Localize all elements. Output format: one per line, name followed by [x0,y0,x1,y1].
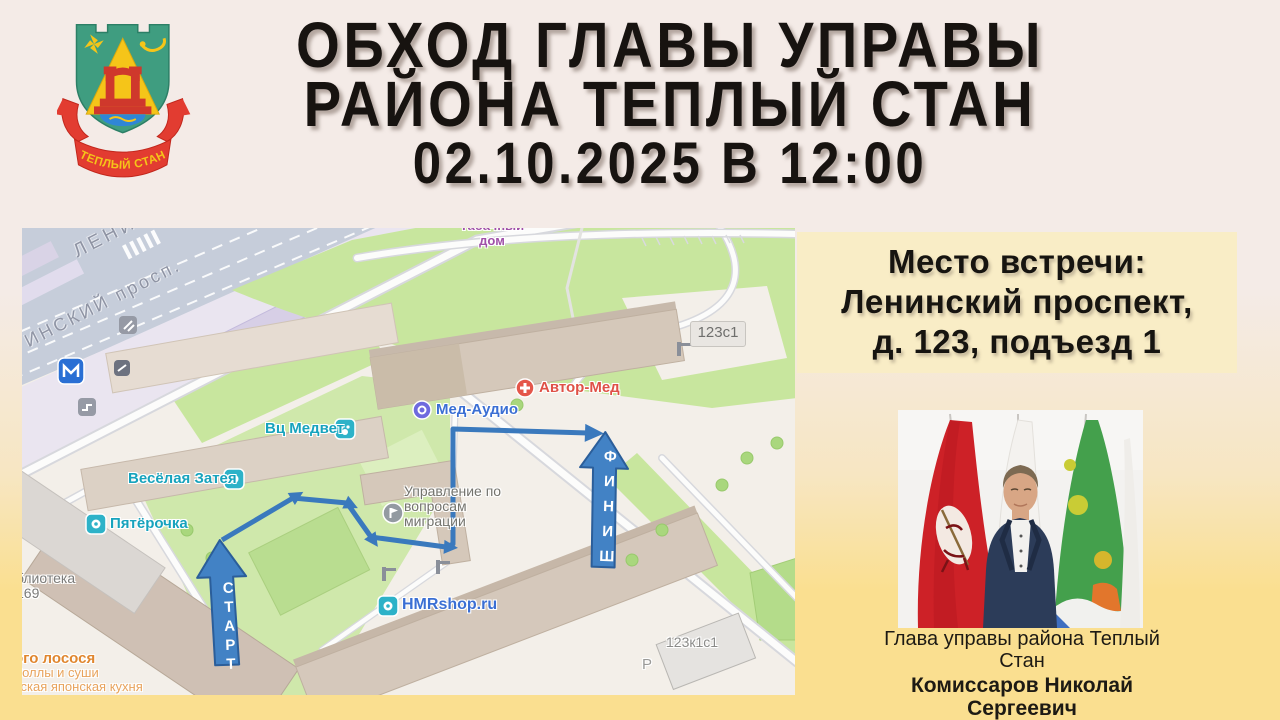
poi-label-rolls: ого лосося Роллы и суши сская японская к… [22,652,143,694]
underpass-icon [78,398,96,416]
avtor-med-icon [516,379,534,397]
poi-label-upravlenie: Управление по вопросам миграции [404,484,512,529]
poi-label-veselaya-zateya: Весёлая Затея [128,470,237,487]
poi-label-pyaterochka: Пятёрочка [110,515,188,532]
hmrshop-icon [378,596,398,616]
meeting-place-panel: Место встречи: Ленинский проспект, д. 12… [797,232,1237,373]
district-emblem-icon: ТЕПЛЫЙ СТАН [57,13,203,193]
poi-label-vc-medvet: Вц Медвет [265,420,344,437]
poster: ТЕПЛЫЙ СТАН ОБХОД ГЛАВЫ УПРАВЫ РАЙОНА ТЕ… [0,0,1280,720]
photo-graphics [898,410,1143,628]
title-line-3: 02.10.2025 В 12:00 [292,134,1049,193]
map-graphics [22,228,795,695]
official-role: Глава управы района Теплый Стан [880,628,1165,672]
official-photo [898,410,1143,628]
upravlenie-flag-icon [383,503,403,523]
poi-label-biblioteka: блиотека 169 [22,571,75,601]
rolls-line-1: ого лосося [22,652,143,666]
poi-label-avtor-med: Автор-Мед [539,379,620,396]
rolls-line-3: сская японская кухня [22,680,143,694]
biblioteka-line-1: блиотека [22,571,75,586]
official-name: Комиссаров Николай Сергеевич [892,674,1152,720]
route-map: ЛЕНИН ИНСКИЙ просп. Табачный дом 123с1 А… [22,228,795,695]
crosswalk-icon [119,316,137,334]
title-line-2: РАЙОНА ТЕПЛЫЙ СТАН [292,75,1049,134]
poi-label-tabachny-dom: Табачный дом [447,228,537,248]
building-label-123k1s1: 123к1с1 [666,634,718,650]
poi-label-med-audio: Мед-Аудио [436,401,518,418]
meeting-line-3: д. 123, подъезд 1 [797,322,1237,362]
meeting-line-1: Место встречи: [797,242,1237,282]
poster-title: ОБХОД ГЛАВЫ УПРАВЫ РАЙОНА ТЕПЛЫЙ СТАН 02… [240,16,1100,193]
title-line-1: ОБХОД ГЛАВЫ УПРАВЫ [292,16,1049,75]
biblioteka-line-2: 169 [22,586,75,601]
route-start-label: СТАРТ [211,580,240,667]
metro-icon [58,358,84,384]
pyaterochka-icon [86,514,106,534]
parking-label: Р [642,656,652,673]
route-finish-label: ФИНИШ [589,448,619,567]
poi-label-hmrshop: HMRshop.ru [402,596,497,614]
building-badge-123s1: 123с1 [690,321,746,347]
official-caption: Глава управы района Теплый Стан Комиссар… [862,628,1182,720]
transit-stop-icon [114,360,130,376]
meeting-line-2: Ленинский проспект, [797,282,1237,322]
rolls-line-2: Роллы и суши [22,666,143,680]
med-audio-icon [413,401,431,419]
